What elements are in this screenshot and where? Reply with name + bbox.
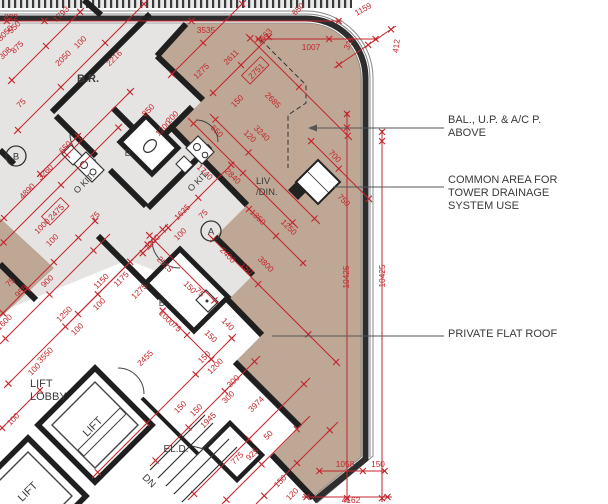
dimension-group: 150 <box>371 459 385 469</box>
dimension-group: 4162 <box>342 495 361 504</box>
dimension-group: 3535 <box>197 25 216 35</box>
annotation-text: COMMON AREA FOR <box>448 174 557 186</box>
annotation-text: ABOVE <box>448 127 486 139</box>
room-label: LOBBY <box>30 391 67 403</box>
dimension-group: 1058 <box>336 459 355 469</box>
room-label-group: LIFT <box>30 378 53 390</box>
room-label-group: EL.D. <box>163 444 188 455</box>
dimension-group: 10425 <box>341 265 351 288</box>
room-label-group: B. <box>125 148 134 158</box>
zone-letter: A <box>208 226 215 237</box>
dimension-text: 150 <box>371 459 385 469</box>
room-label: B. <box>159 298 168 308</box>
room-label-group: /DIN. <box>256 187 278 198</box>
room-label-group: LOBBY <box>30 391 67 403</box>
room-label-group: B.R. <box>77 73 99 85</box>
room-label: /DIN. <box>256 187 278 198</box>
floor-plan-canvas: 8223535100710581504162104251042511593354… <box>0 0 608 504</box>
dimension-text: 10425 <box>341 265 351 288</box>
room-label-group: LIV <box>256 176 271 187</box>
room-label: B.R. <box>77 73 99 85</box>
annotation-text: SYSTEM USE <box>448 200 519 212</box>
dimension-text: 4162 <box>342 495 361 504</box>
dimension-group: 412 <box>390 38 401 53</box>
room-label-group: B. <box>159 298 168 308</box>
zone-letter: B <box>13 151 19 162</box>
dimension-text: 1007 <box>302 42 321 52</box>
floor-plan-page: 8223535100710581504162104251042511593354… <box>0 0 608 504</box>
dimension-group: 10425 <box>377 264 387 287</box>
dimension-text: 10425 <box>377 264 387 287</box>
dimension-group: 1007 <box>302 42 321 52</box>
annotation-text: BAL., U.P. & A/C P. <box>448 114 541 126</box>
room-label: B. <box>125 148 134 158</box>
room-label: EL.D. <box>163 444 188 455</box>
toilet-dot <box>206 300 209 303</box>
dimension-text: 412 <box>390 38 401 53</box>
dimension-text: 1058 <box>336 459 355 469</box>
room-label: LIV <box>256 176 271 187</box>
room-label: LIFT <box>30 378 53 390</box>
annotation-text: PRIVATE FLAT ROOF <box>448 328 557 340</box>
dimension-text: 3535 <box>197 25 216 35</box>
annotation-text: TOWER DRAINAGE <box>448 187 549 199</box>
